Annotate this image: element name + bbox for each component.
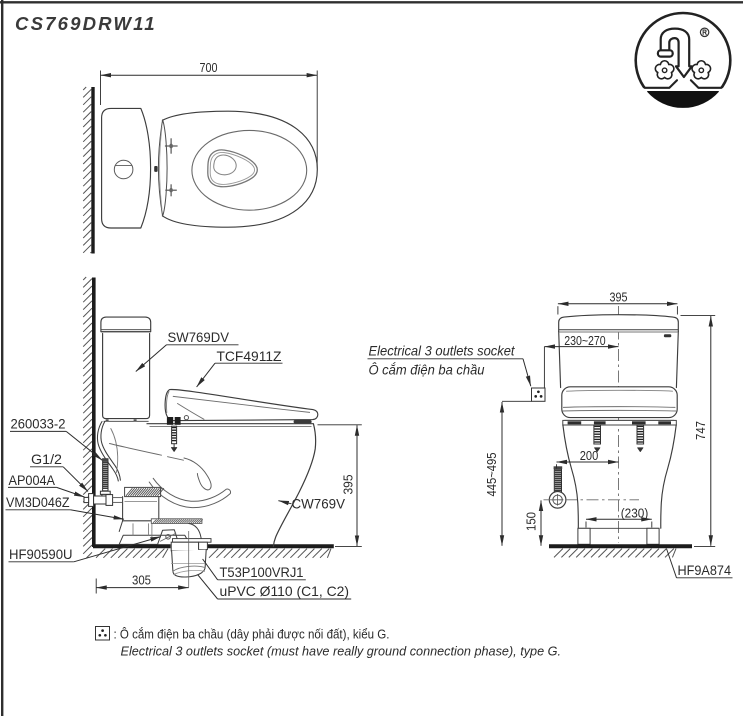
svg-text:T53P100VRJ1: T53P100VRJ1 [220, 565, 304, 580]
svg-text:TCF4911Z: TCF4911Z [217, 349, 282, 364]
svg-text:uPVC Ø110 (C1, C2): uPVC Ø110 (C1, C2) [220, 584, 350, 599]
svg-text:HF9A874: HF9A874 [678, 563, 732, 578]
svg-text:Ô cắm điện ba chầu: Ô cắm điện ba chầu [369, 363, 485, 378]
svg-text:700: 700 [200, 60, 218, 75]
svg-text:CW769V: CW769V [292, 497, 346, 512]
svg-text:150: 150 [523, 512, 538, 531]
svg-text:VM3D046Z: VM3D046Z [6, 495, 70, 510]
svg-text:305: 305 [132, 573, 151, 588]
svg-text:395: 395 [610, 290, 628, 305]
svg-text:260033-2: 260033-2 [11, 417, 66, 432]
svg-text:AP004A: AP004A [9, 473, 56, 488]
svg-text:: Ô cắm điện ba chầu (dây phải: : Ô cắm điện ba chầu (dây phải được nối … [114, 626, 390, 641]
svg-text:200: 200 [580, 448, 599, 463]
svg-text:747: 747 [693, 421, 708, 440]
svg-text:445~495: 445~495 [484, 453, 499, 497]
svg-text:Electrical 3 outlets socket: Electrical 3 outlets socket [369, 343, 516, 358]
svg-text:395: 395 [341, 475, 356, 495]
svg-text:SW769DV: SW769DV [168, 330, 230, 345]
svg-text:230~270: 230~270 [564, 333, 606, 348]
svg-text:HF90590U: HF90590U [9, 547, 73, 562]
svg-text:CS769DRW11: CS769DRW11 [15, 13, 157, 34]
svg-text:Electrical 3 outlets socket (m: Electrical 3 outlets socket (must have r… [121, 643, 562, 658]
svg-text:(230): (230) [621, 506, 649, 521]
svg-text:G1/2: G1/2 [31, 452, 62, 467]
